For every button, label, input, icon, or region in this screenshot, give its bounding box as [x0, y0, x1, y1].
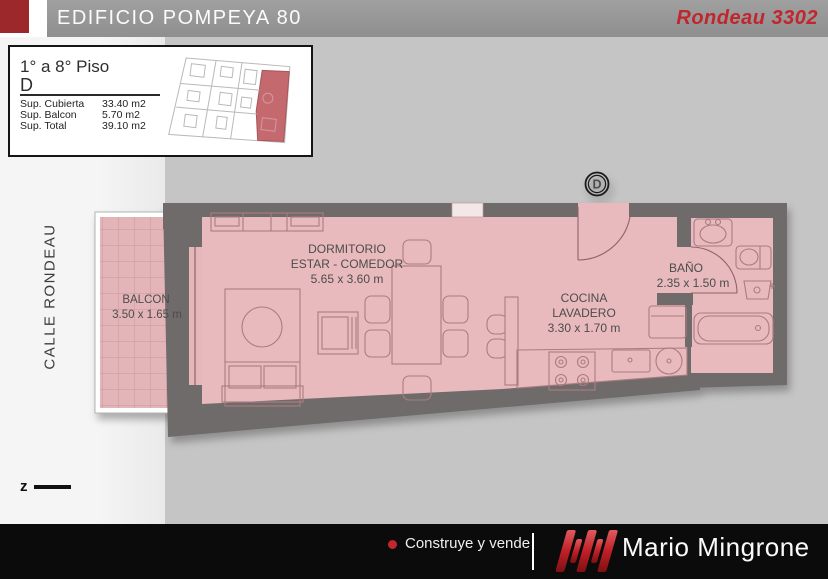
brand-stripes-icon	[556, 527, 618, 575]
balcony-slider	[189, 247, 202, 385]
surface-label: Sup. Total	[20, 120, 67, 132]
table-row: Sup. Total 39.10 m2	[20, 120, 165, 131]
unit-letter: D	[20, 75, 33, 96]
top-bar: EDIFICIO POMPEYA 80 Rondeau 3302	[47, 0, 828, 37]
surface-value: 39.10 m2	[102, 120, 146, 132]
laundry-label: LAVADERO	[552, 306, 616, 320]
kitchen-label: COCINA	[561, 291, 608, 305]
kitchen-dims: 3.30 x 1.70 m	[548, 321, 621, 335]
table-row: Sup. Balcon 5.70 m2	[20, 109, 165, 120]
red-dot-icon	[388, 540, 397, 549]
brand-name: Mario Mingrone	[622, 532, 810, 563]
bathroom-dims: 2.35 x 1.50 m	[657, 276, 730, 290]
footer-bar: Construye y vende Mario Mingrone	[0, 524, 828, 579]
bedroom-dims: 5.65 x 3.60 m	[311, 272, 384, 286]
floors-range: 1° a 8° Piso	[20, 57, 109, 77]
footer-tagline: Construye y vende	[405, 535, 530, 552]
brand-red-square	[0, 0, 29, 33]
unit-info-box: 1° a 8° Piso D Sup. Cubierta 33.40 m2 Su…	[8, 45, 313, 157]
north-letter: z	[20, 478, 28, 495]
unit-marker-letter: D	[592, 178, 601, 192]
entry-opening	[578, 203, 629, 217]
bathroom-label: BAÑO	[669, 261, 703, 275]
table-row: Sup. Cubierta 33.40 m2	[20, 98, 165, 109]
balcony-label: BALCON	[122, 294, 169, 306]
living-label: ESTAR - COMEDOR	[291, 257, 404, 271]
unit-title: Rondeau 3302	[676, 0, 818, 37]
north-indicator: z	[20, 478, 71, 495]
unit-marker: D	[586, 173, 609, 196]
floor-plan: D BALCON 3.50 x 1.65 m DORMITORIO ESTAR …	[55, 150, 800, 480]
footer-divider	[532, 533, 534, 570]
north-line	[34, 485, 71, 489]
divider-line	[20, 94, 160, 96]
balcony-dims: 3.50 x 1.65 m	[112, 309, 182, 321]
window-opening	[452, 203, 483, 217]
bedroom-label: DORMITORIO	[308, 242, 386, 256]
surface-table: Sup. Cubierta 33.40 m2 Sup. Balcon 5.70 …	[20, 98, 165, 131]
keyplan-thumbnail	[163, 56, 303, 150]
building-title: EDIFICIO POMPEYA 80	[57, 0, 302, 37]
